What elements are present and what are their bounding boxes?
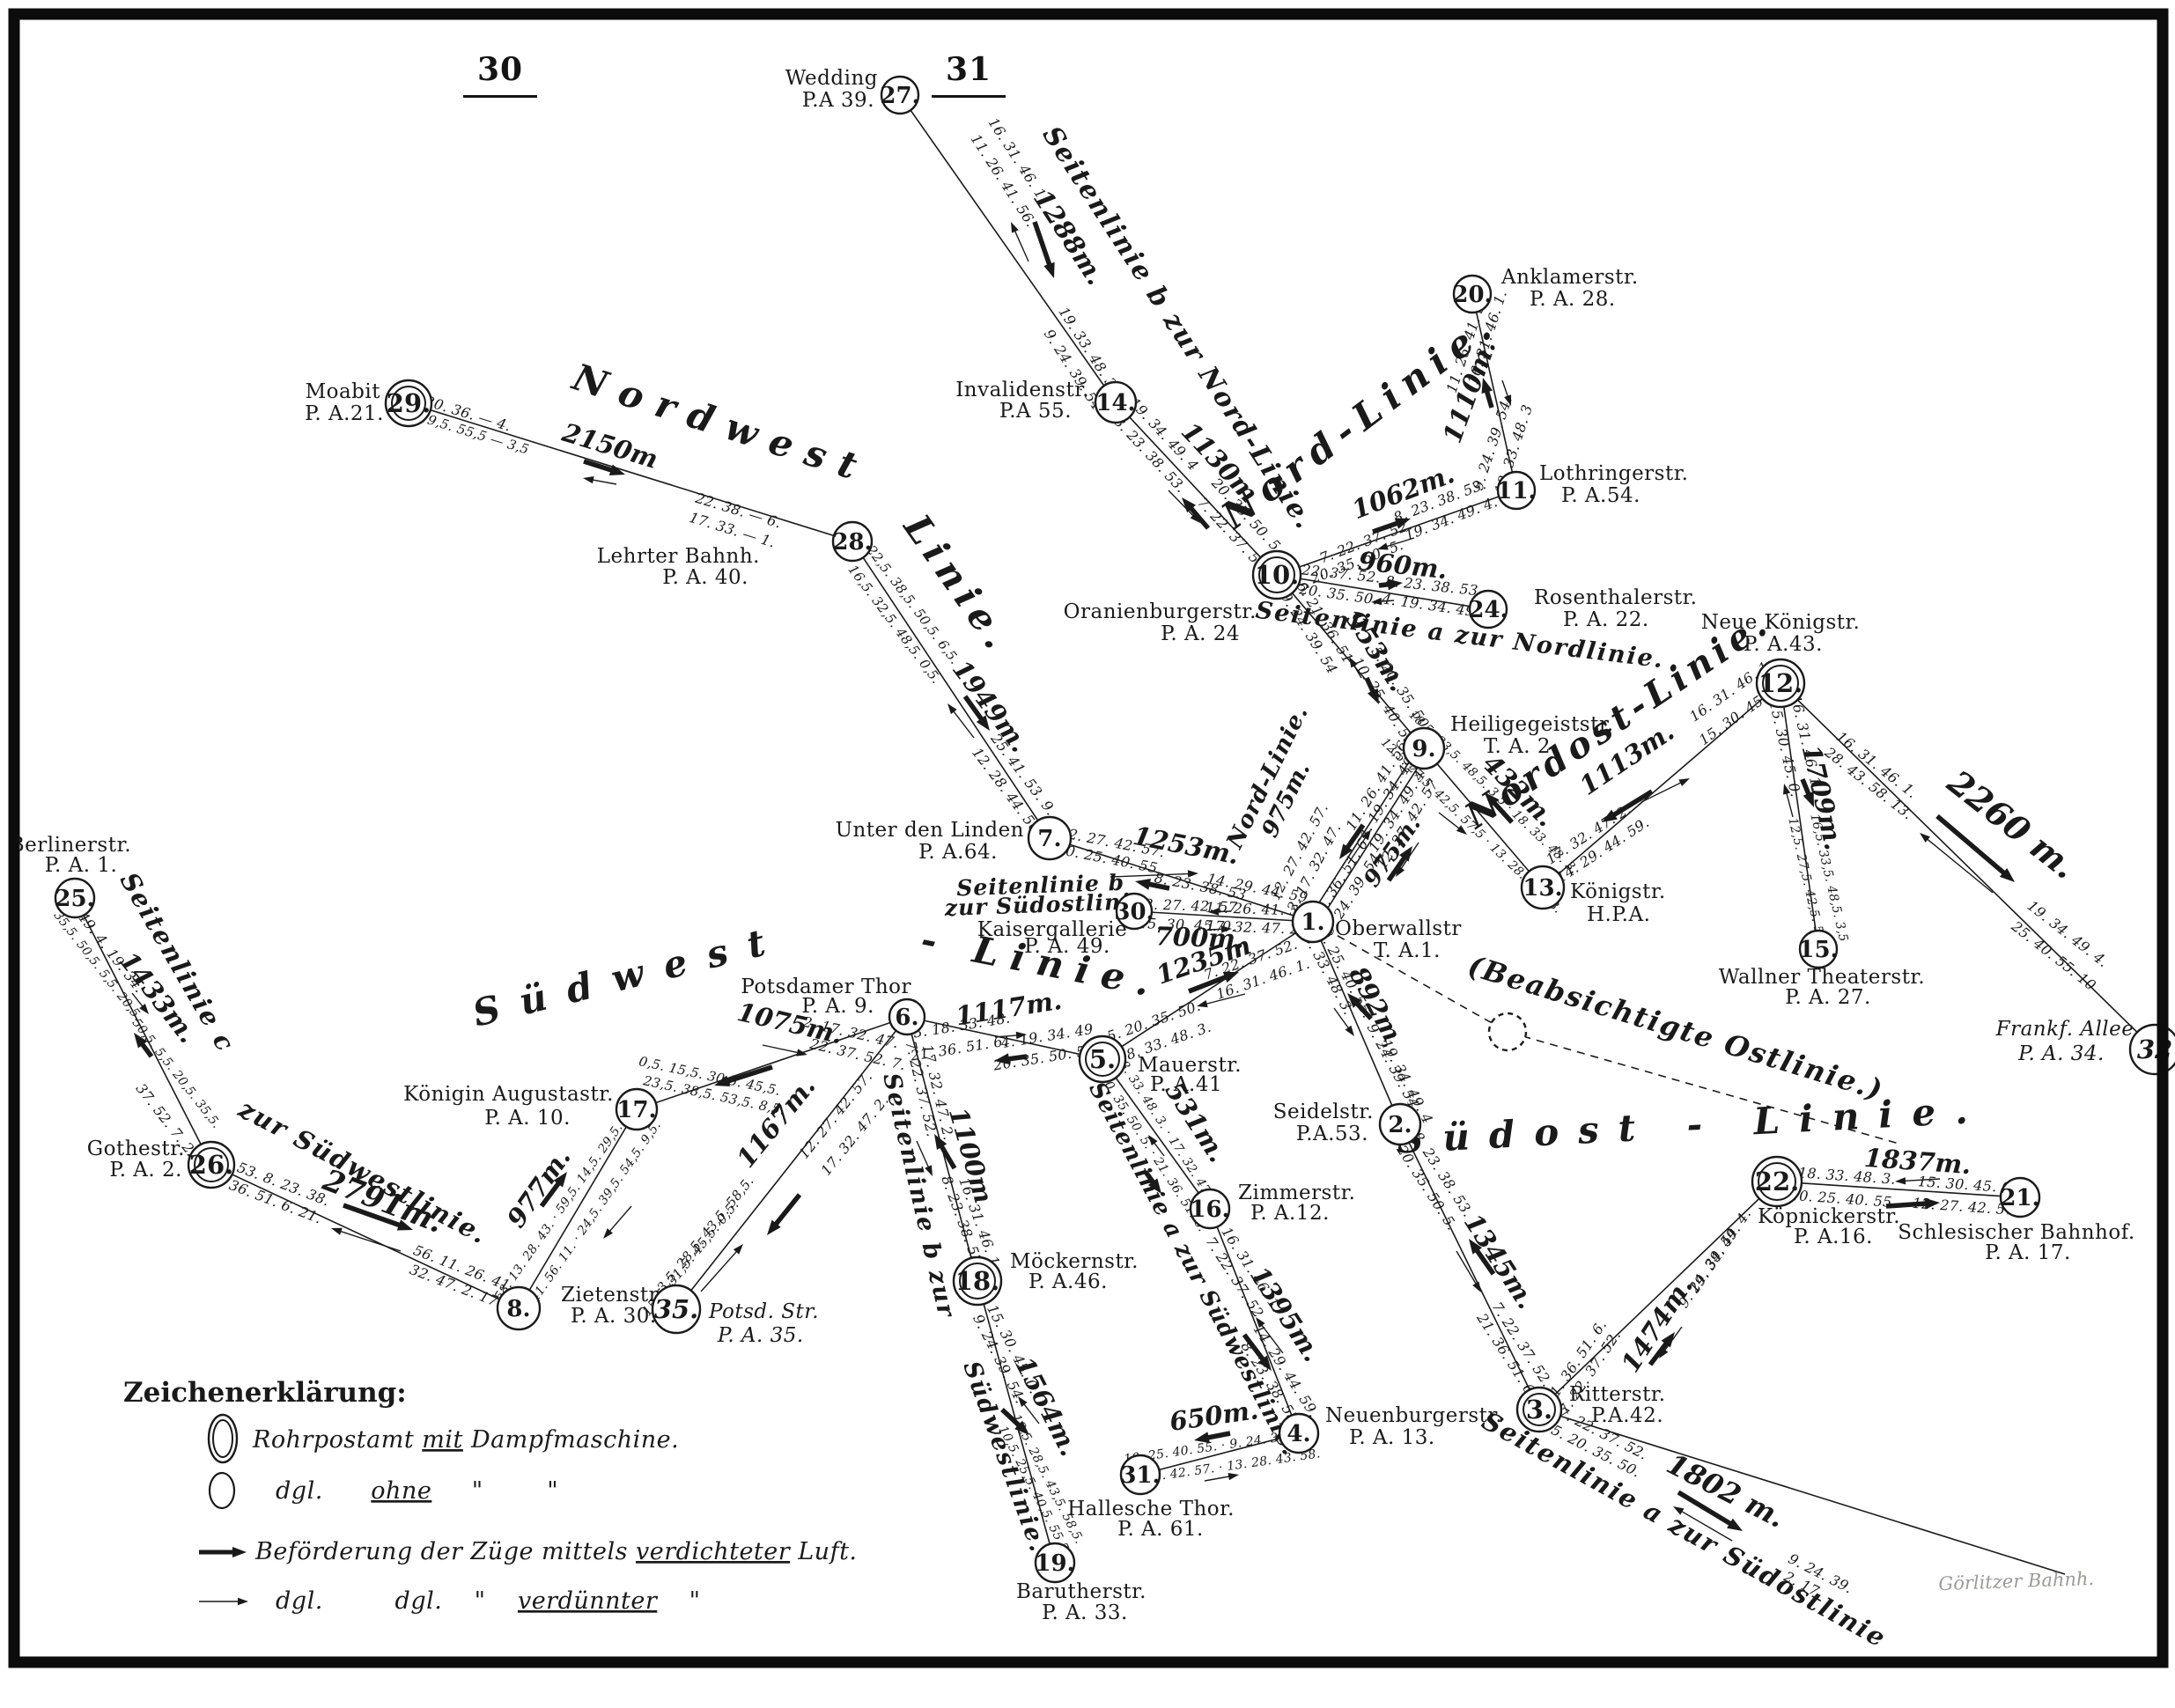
legend-item-label: Beförderung der Züge mittels verdichtete… (254, 1538, 858, 1565)
arrow-head (331, 1228, 343, 1235)
station-number: 11. (1496, 478, 1536, 504)
distance-label: 977m. (501, 1143, 577, 1233)
station-19: 19.Barutherstr.P. A. 33. (1016, 1543, 1146, 1624)
legend-item-label: dgl. ohne " " (276, 1477, 558, 1505)
station-number: 27. (880, 83, 919, 109)
station-number: 25. (55, 886, 94, 912)
station-name: P. A. 2. (109, 1159, 182, 1182)
planned-station (1489, 1013, 1526, 1050)
legend-item-label: dgl. dgl. " verdünnter " (276, 1587, 701, 1615)
station-name: Potsd. Str. (708, 1300, 819, 1323)
station-name: P. A. 17. (1985, 1241, 2071, 1264)
arrow-head (1472, 1282, 1481, 1292)
schedule-label: 9. 24. 39. 54 (1675, 1225, 1741, 1311)
station-name: P. A. 13. (1349, 1426, 1435, 1449)
station-number: 17. (616, 1097, 656, 1123)
arrow-head (1346, 1026, 1354, 1036)
station-number: 24. (1468, 597, 1508, 623)
station-name: P. A. 1. (45, 854, 118, 877)
station-number: 22. (1755, 1167, 1799, 1196)
station-name: Rosenthalerstr. (1534, 586, 1697, 609)
station-name: P. A.43. (1744, 633, 1823, 656)
station-name: Ritterstr. (1569, 1383, 1666, 1406)
station-7: 7.Unter den LindenP. A.64. (836, 817, 1071, 864)
goerlitzer-note: Görlitzer Bahnh. (1938, 1568, 2094, 1594)
legend-rarefied-arrow-icon (199, 1598, 248, 1605)
station-name: Oberwallstr (1335, 917, 1462, 940)
station-number: 12. (1758, 668, 1803, 698)
station-13: 13.Königstr.H.P.A. (1522, 866, 1666, 926)
station-16: 16.Zimmerstr.P. A.12. (1190, 1182, 1355, 1228)
station-number: 29. (387, 388, 431, 418)
flow-arrow-rarefied (583, 476, 616, 484)
station-number: 28. (832, 529, 872, 556)
station-number: 16. (1190, 1196, 1229, 1223)
station-26: 26.Gothestr.P. A. 2. (87, 1137, 234, 1188)
station-name: P. A. 27. (1785, 986, 1871, 1009)
legend-title: Zeichenerklärung: (123, 1377, 407, 1409)
arrow-shaft (951, 708, 974, 738)
legend-double-circle-icon (213, 1420, 232, 1457)
schedule-label: 17. 32. 47. 2. (1205, 917, 1304, 938)
station-name: P. A. 33. (1042, 1601, 1128, 1624)
distance-label: 2260 m. (1940, 762, 2084, 887)
flow-arrow-rarefied (603, 1206, 631, 1239)
arrow-head (947, 703, 957, 714)
station-name: Anklamerstr. (1500, 266, 1639, 289)
station-name: P. A. 35. (717, 1324, 804, 1347)
station-number: 18. (955, 1266, 999, 1296)
legend: Zeichenerklärung:Rohrpostamt mit Dampfma… (123, 1377, 858, 1615)
flow-arrow-rarefied (331, 1228, 401, 1251)
station-number: 6. (895, 1005, 918, 1031)
station-name: P.A 39. (802, 89, 874, 112)
station-name: P. A. 28. (1530, 288, 1616, 311)
station-27: 27.WeddingP.A 39. (785, 67, 920, 114)
station-name: P. A.16. (1794, 1226, 1873, 1248)
station-name: P. A. 9. (801, 995, 874, 1018)
station-name: Unter den Linden (836, 819, 1024, 842)
arrow-shaft (1456, 1251, 1478, 1287)
station-name: P. A.12. (1250, 1202, 1330, 1225)
station-32: 32Frankf. AlleeP. A. 34. (1995, 1018, 2175, 1074)
flow-arrow-rarefied (947, 703, 974, 738)
station-name: Königstr. (1570, 880, 1666, 903)
station-number: 10. (1255, 560, 1299, 590)
station-name: P. A.21. (305, 402, 384, 425)
flow-arrow-rarefied (1456, 1251, 1481, 1292)
station-name: Invalidenstr. (955, 379, 1089, 401)
station-15: 15.Wallner Theaterstr.P. A. 27. (1719, 931, 1925, 1009)
arrow-head (1678, 778, 1690, 786)
station-name: P.A 55. (999, 400, 1072, 423)
station-3: 3.Ritterstr.P.A.42. (1517, 1383, 1666, 1432)
flow-arrow-rarefied (763, 1045, 807, 1056)
distance-label: 650m. (1168, 1395, 1260, 1437)
station-circle (1489, 1013, 1526, 1050)
station-number: 20. (1452, 282, 1492, 308)
distance-label: 1345m. (1458, 1208, 1542, 1314)
station-name: P. A. 10. (484, 1107, 571, 1130)
station-name: P. A. 24 (1161, 622, 1240, 645)
station-name: P.A.42. (1591, 1404, 1663, 1427)
legend-circle-icon (210, 1473, 234, 1508)
station-number: 7. (1037, 826, 1061, 852)
station-name: Neuenburgerstr. (1325, 1404, 1502, 1427)
station-name: H.P.A. (1587, 903, 1650, 926)
arrow-shaft (1014, 227, 1029, 261)
station-name: Frankf. Allee (1995, 1018, 2134, 1041)
station-name: P. A. 30. (571, 1305, 657, 1328)
station-name: T. A.1. (1374, 939, 1441, 962)
station-name: T. A. 2. (1484, 735, 1558, 758)
arrow-head (583, 476, 594, 483)
map-page: NordwestLinie.Seitenlinie b zur Nord-Lin… (0, 0, 2175, 1708)
station-name: P. A.46. (1029, 1270, 1108, 1293)
station-number: 14. (1095, 390, 1135, 416)
station-name: Lehrter Bahnh. (597, 545, 760, 568)
station-name: Zietenstr. (561, 1284, 663, 1307)
legend-item-label: Rohrpostamt mit Dampfmaschine. (252, 1426, 679, 1454)
station-number: 5. (1089, 1044, 1116, 1074)
station-number: 19. (1035, 1550, 1074, 1577)
arrow-shaft (1924, 836, 1993, 893)
station-number: 1. (1301, 909, 1324, 936)
station-name: Barutherstr. (1016, 1580, 1146, 1603)
station-name: Moabit (306, 380, 381, 403)
station-18: 18.Möckernstr.P. A.46. (954, 1250, 1139, 1305)
station-number: 4. (1287, 1421, 1310, 1447)
arrow-shaft (607, 1206, 631, 1234)
legend-compressed-arrow-icon (199, 1547, 247, 1557)
station-29: 29.MoabitP. A.21. (305, 380, 431, 426)
station-name: P. A.41 (1150, 1073, 1222, 1096)
station-name: Wedding (785, 67, 878, 90)
arrow-head (1228, 1473, 1239, 1480)
station-25: 25.Berlinerstr.P. A. 1. (10, 834, 131, 917)
station-24: 24.Rosenthalerstr.P. A. 22. (1468, 586, 1697, 631)
station-17: 17.Königin Augustastr.P. A. 10. (403, 1083, 657, 1130)
station-2: 2.Seidelstr.P.A.53. (1273, 1101, 1420, 1145)
station-name: P. A.64. (918, 841, 998, 864)
station-name: P.A.53. (1296, 1123, 1368, 1145)
station-21: 21.Schlesischer Bahnhof.P. A. 17. (1898, 1178, 2134, 1264)
station-number: 3. (1526, 1395, 1552, 1425)
station-number: 26. (189, 1150, 233, 1180)
station-11: 11.Lothringerstr.P. A.54. (1496, 462, 1688, 509)
station-name: P. A.54. (1561, 484, 1640, 507)
arrow-head (232, 1547, 247, 1557)
station-number: 31. (1120, 1462, 1160, 1489)
station-name: Seidelstr. (1273, 1101, 1374, 1123)
arrow-head (796, 1049, 807, 1056)
station-number: 8. (506, 1296, 530, 1322)
arrow-shaft (336, 1230, 401, 1251)
station-number: 21. (2000, 1185, 2039, 1211)
station-35: 35.Potsd. Str.P. A. 35. (652, 1285, 819, 1347)
station-number: 9. (1412, 736, 1435, 762)
station-8: 8.Zietenstr.P. A. 30. (498, 1284, 663, 1329)
station-name: P. A. 34. (2017, 1042, 2105, 1065)
line-name-label: Seitenlinie a zur Südostlinie (1477, 1405, 1891, 1653)
station-name: P. A. 40. (662, 566, 748, 589)
arrow-head (1895, 1177, 1906, 1184)
station-name: P. A. 22. (1563, 608, 1649, 631)
station-name: Königin Augustastr. (403, 1083, 614, 1106)
flow-arrow-rarefied (1920, 833, 1993, 893)
station-number: 2. (1388, 1112, 1412, 1138)
flow-arrow-compressed (767, 1195, 800, 1235)
network-map: NordwestLinie.Seitenlinie b zur Nord-Lin… (0, 0, 2175, 1708)
station-number: 13. (1522, 875, 1562, 902)
arrow-head (238, 1598, 248, 1605)
station-14: 14.Invalidenstr.P.A 55. (955, 379, 1136, 423)
page-number-right: 31 (932, 51, 1006, 98)
arrow-head (1920, 833, 1930, 843)
station-name: Oranienburgerstr. (1064, 600, 1257, 623)
page-number-left: 30 (463, 51, 537, 98)
station-name: Neue Königstr. (1701, 611, 1861, 634)
arrow-head (1043, 262, 1054, 278)
arrow-head (1011, 222, 1019, 233)
station-number: 15. (1798, 937, 1838, 963)
station-name: Gothestr. (87, 1137, 185, 1160)
station-20: 20.Anklamerstr.P. A. 28. (1452, 266, 1638, 313)
arrow-shaft (763, 1045, 802, 1054)
station-name: P. A. 49. (1024, 935, 1110, 958)
station-name: P. A. 61. (1117, 1518, 1204, 1541)
station-name: Heiligegeiststr. (1450, 713, 1614, 736)
station-name: Lothringerstr. (1539, 462, 1689, 485)
station-number: 35. (654, 1294, 698, 1324)
